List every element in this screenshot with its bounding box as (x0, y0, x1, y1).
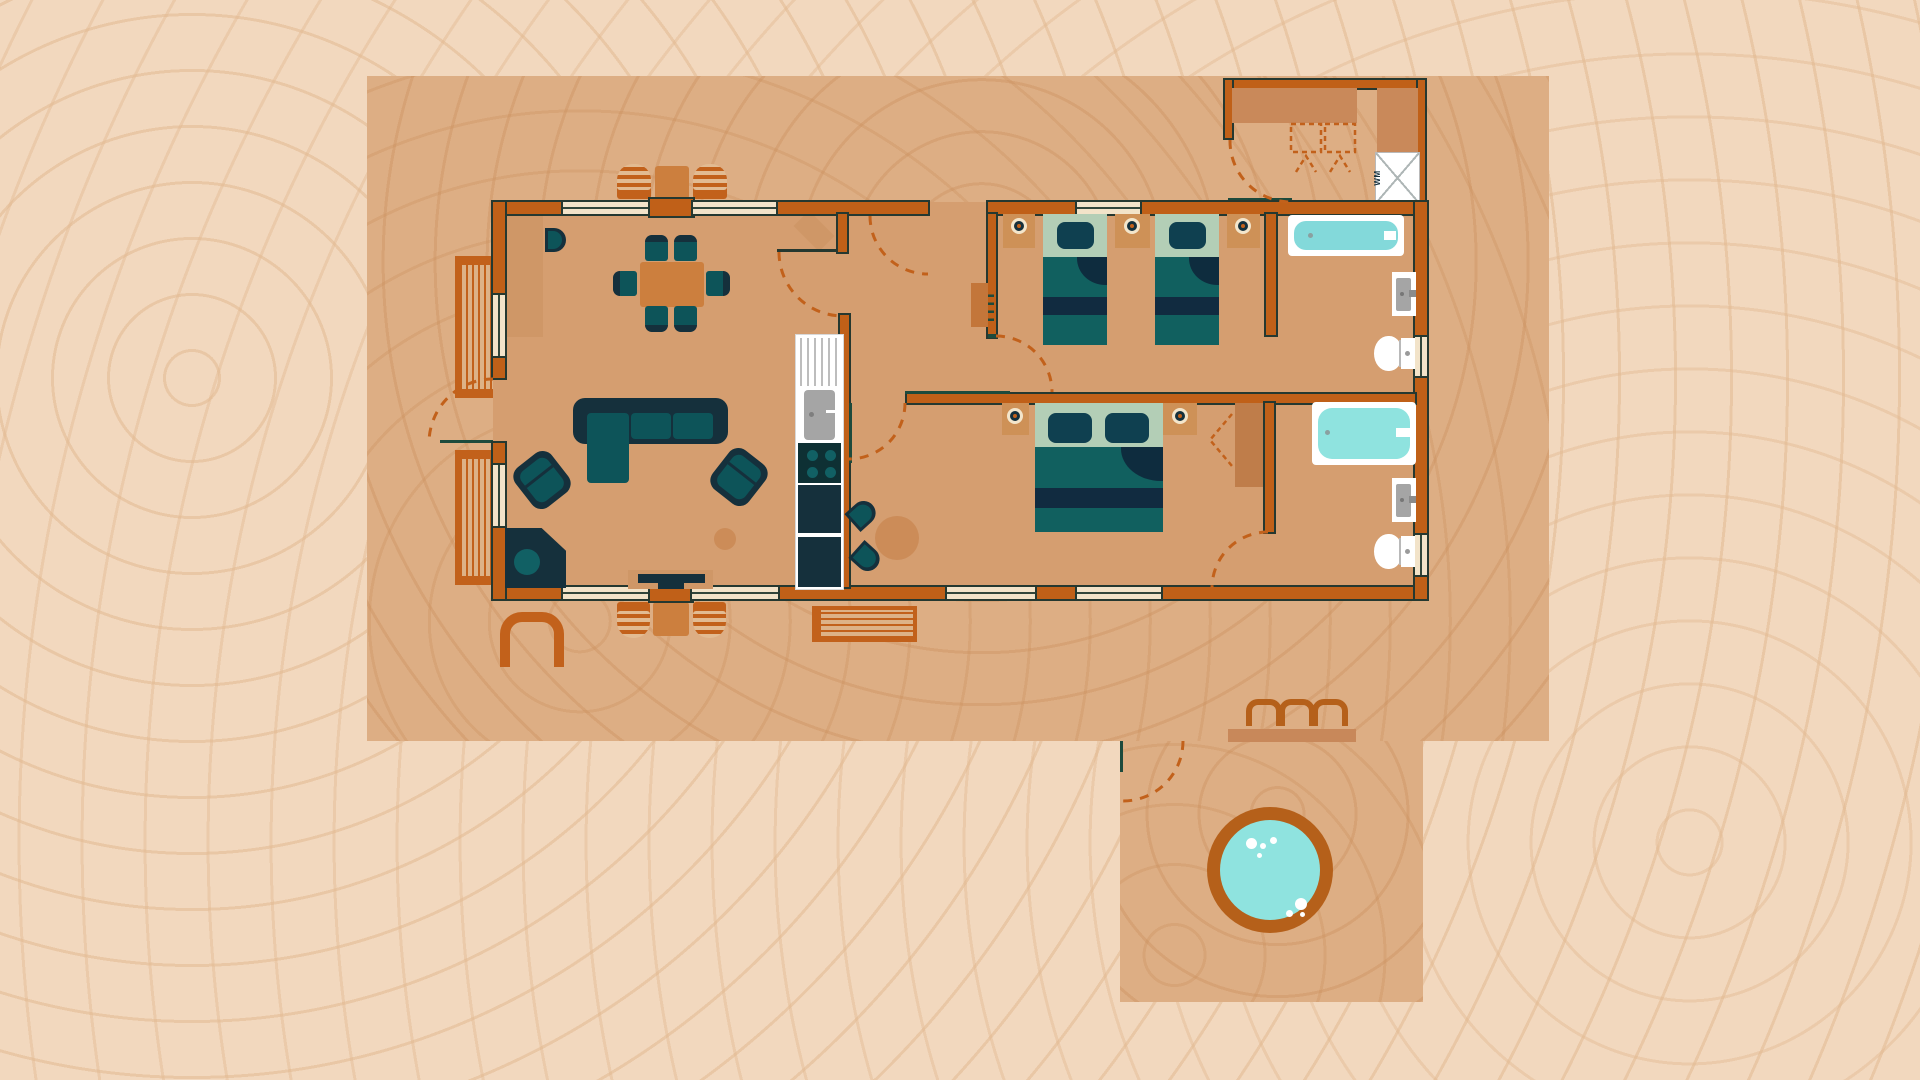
wall (1415, 202, 1427, 337)
wall-stub-entry (838, 214, 847, 252)
window (947, 587, 1037, 599)
lamp (1124, 218, 1140, 234)
high-chair-seat (548, 231, 562, 249)
blanket (1035, 447, 1163, 532)
window (493, 295, 505, 358)
pillow (1048, 413, 1092, 443)
wall (1142, 202, 1427, 214)
lamp-bulb (1017, 224, 1021, 228)
outdoor-chair (693, 164, 727, 199)
single-bed (1155, 214, 1219, 345)
planter-pot (1312, 699, 1348, 726)
toilet-seam (1399, 340, 1401, 367)
burner (807, 450, 818, 461)
hot-tub-water (1220, 820, 1320, 920)
breakfast-table (875, 516, 919, 560)
threshold-mark-deck-step (1120, 741, 1123, 772)
sofa-cushion (631, 413, 671, 439)
radiator-fins (988, 291, 994, 321)
wall (1163, 587, 1427, 599)
outdoor-table-bottom (653, 602, 689, 636)
pillow (1169, 222, 1206, 249)
chair-back (613, 271, 620, 296)
kitchen-sink (804, 390, 835, 440)
outdoor-table-top (655, 166, 689, 199)
sink-faucet (826, 410, 836, 413)
window (693, 202, 778, 214)
wall (988, 202, 1077, 214)
lamp-bulb (1178, 414, 1182, 418)
planter-pot (1246, 699, 1282, 726)
wall (1037, 587, 1077, 599)
blanket-fold (1189, 257, 1219, 285)
fridge (798, 485, 841, 533)
wall (778, 202, 928, 214)
pillow (1105, 413, 1149, 443)
bubble (1300, 912, 1305, 917)
bathtub-faucet-notch (1396, 428, 1410, 437)
wall (1415, 378, 1427, 535)
radiator (971, 283, 988, 327)
utility-wall-top (1225, 80, 1425, 88)
outdoor-bench-bottom (812, 606, 917, 642)
window (1077, 202, 1142, 214)
planter-pot (1279, 699, 1315, 726)
blanket-stripe (1035, 488, 1163, 508)
pet-bed-arch (500, 612, 564, 667)
wall (1415, 577, 1427, 599)
threshold-mark-front-door (440, 440, 493, 443)
floor-plan-illustration: WM (0, 0, 1920, 1080)
basin-drain (1400, 498, 1404, 502)
wall (493, 202, 505, 295)
entry-rug (505, 215, 543, 337)
chair-back (645, 235, 668, 242)
deck-step-edge (1228, 729, 1356, 742)
tv-screen (638, 574, 705, 583)
bubble (1246, 838, 1257, 849)
wardrobe (1235, 403, 1263, 487)
toilet-seam (1399, 538, 1401, 565)
basin-drain (1400, 292, 1404, 296)
bubble (1295, 898, 1307, 910)
sofa-cushion (673, 413, 713, 439)
bathtub-faucet-notch (1384, 231, 1396, 240)
wall-bedroom-double (1265, 403, 1274, 532)
dining-chair (645, 306, 668, 332)
dining-table (640, 262, 704, 307)
threshold-mark-bedroom (905, 391, 1010, 394)
basin-faucet (1409, 290, 1416, 297)
drainer (800, 338, 839, 386)
hob (798, 443, 841, 483)
bathtub (1288, 215, 1404, 256)
door-top (650, 199, 693, 216)
basin-faucet (1409, 496, 1416, 503)
wall (493, 443, 505, 465)
dining-chair (674, 306, 697, 332)
lamp-bulb (1241, 224, 1245, 228)
wash-basin (1392, 478, 1416, 522)
blanket-fold (1077, 257, 1107, 285)
threshold-mark-kitchen-wall (849, 403, 852, 463)
double-bed (1035, 403, 1163, 532)
dining-chair (674, 235, 697, 261)
sink-drain (809, 412, 814, 417)
stove-plate (514, 549, 540, 575)
sofa-chaise-cushion (587, 413, 629, 483)
window (1415, 535, 1427, 577)
lamp (1172, 408, 1188, 424)
blanket (1043, 257, 1107, 345)
utility-cabinet (1377, 88, 1418, 152)
bubble (1270, 837, 1277, 844)
wall-bathroom1 (1266, 214, 1276, 335)
burner (825, 450, 836, 461)
lamp-bulb (1130, 224, 1134, 228)
lamp-bulb (1013, 414, 1017, 418)
blanket-fold (1121, 447, 1163, 481)
blanket-stripe (1155, 297, 1219, 315)
toilet-bowl (1374, 336, 1402, 371)
bathtub-drain (1308, 233, 1313, 238)
hot-tub (1207, 807, 1333, 933)
dining-chair (613, 271, 637, 296)
blanket-stripe (1043, 297, 1107, 315)
bubble (1257, 853, 1262, 858)
washing-machine-label: WM (1373, 170, 1382, 185)
toilet-bowl (1374, 534, 1402, 569)
burner (807, 467, 818, 478)
utility-wall-left (1225, 80, 1232, 138)
tv-stand (658, 583, 684, 589)
outdoor-chair (617, 164, 651, 199)
door-threshold (777, 249, 838, 252)
base-unit (798, 537, 841, 587)
wash-basin (1392, 272, 1416, 316)
bathtub-large (1312, 402, 1416, 465)
window (1077, 587, 1163, 599)
lamp (1235, 218, 1251, 234)
washing-machine: WM (1375, 152, 1420, 204)
utility-shelf (1232, 88, 1357, 123)
outdoor-chair (617, 602, 650, 638)
side-table (714, 528, 736, 550)
blanket (1155, 257, 1219, 345)
kitchen-unit-run (796, 335, 843, 589)
chair-back (723, 271, 730, 296)
lamp (1007, 408, 1023, 424)
dining-chair (706, 271, 730, 296)
threshold-mark-bedroom-twin-door (988, 334, 996, 338)
outdoor-chair (693, 602, 726, 638)
chair-back (674, 325, 697, 332)
wall (493, 528, 505, 599)
chair-back (645, 325, 668, 332)
toilet-flush (1405, 351, 1410, 356)
wall (493, 358, 505, 378)
bathtub-drain (1325, 430, 1330, 435)
window (493, 465, 505, 528)
chair-back (674, 235, 697, 242)
window (563, 202, 650, 214)
bubble (1260, 843, 1266, 849)
single-bed (1043, 214, 1107, 345)
dining-chair (645, 235, 668, 261)
lamp (1011, 218, 1027, 234)
toilet-flush (1405, 549, 1410, 554)
window (1415, 337, 1427, 378)
bubble (1286, 910, 1293, 917)
burner (825, 467, 836, 478)
pillow (1057, 222, 1094, 249)
